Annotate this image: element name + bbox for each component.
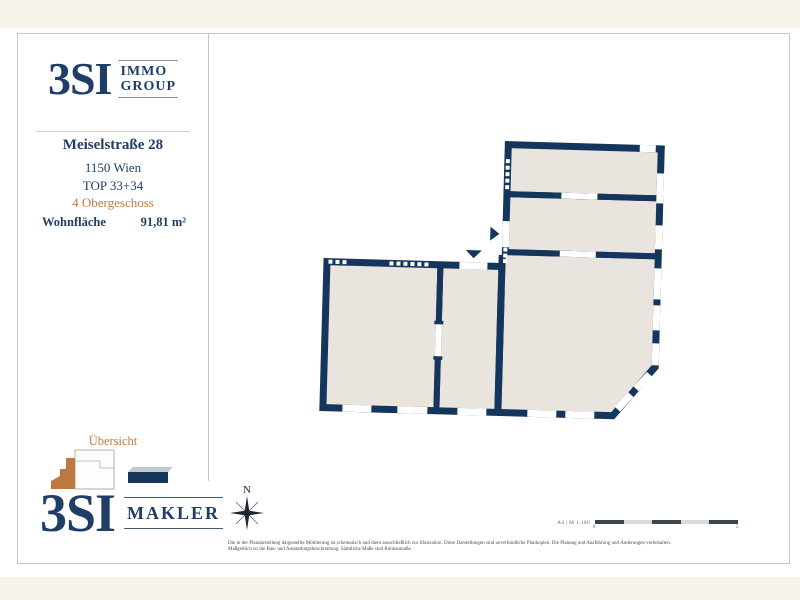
background-band-top [0, 0, 800, 28]
property-floor: 4 Obergeschoss [18, 195, 208, 211]
logo-brand-text: 3SI [48, 56, 111, 102]
floor-plan [297, 115, 706, 446]
compass-icon [230, 496, 264, 530]
logo-sub-line2: GROUP [120, 79, 176, 94]
north-label: N [230, 484, 264, 496]
room-top [511, 148, 658, 195]
logo-makler: 3SI MAKLER [40, 486, 223, 540]
scale-format-label: A4 | M 1:100 [518, 520, 590, 526]
entrance-arrow-down-icon [466, 250, 482, 258]
rooms [326, 143, 657, 413]
logo-makler-subtitle: MAKLER [124, 497, 223, 529]
logo-makler-line: MAKLER [127, 504, 220, 522]
overview-neighbour-block [128, 467, 173, 483]
property-city: 1150 Wien [18, 160, 208, 176]
logo-immo-group: 3SI IMMO GROUP [18, 56, 208, 102]
property-unit: TOP 33+34 [18, 178, 208, 194]
living-area-value: 91,81 m² [141, 215, 186, 230]
scale-bar [595, 520, 738, 524]
logo-brand-text-bottom: 3SI [40, 486, 115, 540]
background-band-bottom [0, 577, 800, 600]
sidebar-divider [208, 34, 209, 481]
living-area-row: Wohnfläche 91,81 m² [18, 215, 208, 230]
entrance-arrow-right-icon [490, 227, 499, 241]
room-center [439, 268, 498, 408]
scale-indicator: A4 | M 1:100 0 5 [488, 516, 778, 530]
disclaimer: Die in der Plandarstellung dargestellte … [228, 541, 790, 554]
living-area-label: Wohnfläche [42, 215, 106, 230]
property-street: Meiselstraße 28 [18, 137, 208, 154]
room-middle [509, 197, 656, 253]
room-left [326, 265, 437, 407]
logo-subtitle: IMMO GROUP [118, 60, 178, 98]
north-indicator: N [230, 484, 264, 535]
disclaimer-line2: Maßgeblich ist die Bau- und Ausstattungs… [228, 547, 790, 553]
sheet: 3SI IMMO GROUP Meiselstraße 28 1150 Wien… [17, 33, 790, 564]
scale-zero-label: 0 [593, 525, 596, 530]
wall-detail-squares [328, 154, 509, 268]
logo-sub-line1: IMMO [120, 64, 176, 79]
header-divider [36, 131, 190, 132]
scale-five-label: 5 [736, 525, 739, 530]
